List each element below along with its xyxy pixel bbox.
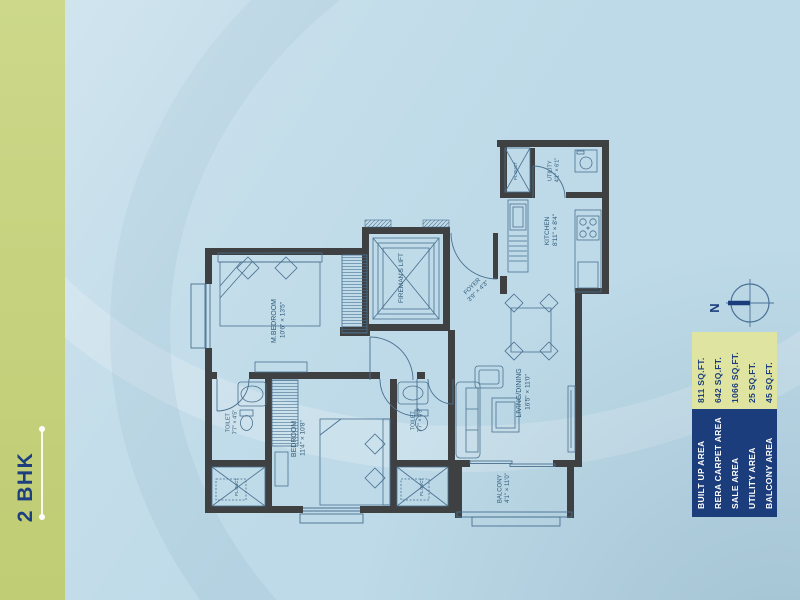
floor-plan-svg: M.BEDROOM 10'6" × 13'5" BEDROOM 11'4" × … (85, 130, 615, 535)
legend-label: RERA CARPET AREA (709, 409, 726, 517)
balcony-label: BALCONY 4'1" × 11'0" (498, 473, 512, 503)
unit-type-label: 2 BHK (14, 452, 38, 523)
lift-shaft (373, 238, 439, 319)
legend-label: BUILT UP AREA (692, 409, 709, 517)
legend-value: 45 SQ.FT. (760, 332, 777, 409)
bedroom-label: BEDROOM 11'4" × 10'8" (291, 419, 307, 457)
divider-dot-top (39, 426, 45, 432)
legend-row: UTILITY AREA 25 SQ.FT. (743, 332, 760, 517)
compass: N (705, 275, 785, 335)
legend-row: RERA CARPET AREA 642 SQ.FT. (709, 332, 726, 517)
legend-row: BALCONY AREA 45 SQ.FT. (760, 332, 777, 517)
foyer-label: FOYER 3'9" × 4'3" (462, 275, 490, 303)
legend-row: BUILT UP AREA 811 SQ.FT. (692, 332, 709, 517)
wall-hatch-strips (365, 220, 449, 227)
walls (205, 140, 609, 518)
duct-top-label: PL.DUCT (513, 162, 518, 180)
kitchen-label: KITCHEN 8'11" × 8'4" (544, 213, 559, 246)
legend-label: UTILITY AREA (743, 409, 760, 517)
legend-label: BALCONY AREA (760, 409, 777, 517)
legend-label: SALE AREA (726, 409, 743, 517)
toilet1-label: TOILET 7'7" × 4'5" (226, 410, 239, 435)
floor-plan: M.BEDROOM 10'6" × 13'5" BEDROOM 11'4" × … (85, 130, 615, 535)
compass-icon: N (705, 275, 785, 335)
legend-value: 811 SQ.FT. (692, 332, 709, 409)
m-bedroom-label: M.BEDROOM 10'6" × 13'5" (271, 297, 287, 343)
lift-label: FIREMAN'S LIFT (398, 253, 405, 303)
duct-left-label: PL.DUCT (234, 478, 239, 496)
page-background: 2 BHK (0, 0, 800, 600)
divider-line (41, 430, 43, 516)
legend-row: SALE AREA 1066 SQ.FT. (726, 332, 743, 517)
legend-value: 25 SQ.FT. (743, 332, 760, 409)
utility-label: UTILITY 4'1" × 6'1" (548, 158, 561, 183)
area-legend: BUILT UP AREA 811 SQ.FT. RERA CARPET ARE… (692, 332, 777, 517)
living-dining-label: LIVING/DINING 16'5" × 11'0" (516, 366, 532, 417)
wardrobes (272, 255, 367, 446)
toilet2-label: TOILET 7'7" × 4'9" (411, 408, 424, 433)
north-label: N (707, 303, 722, 312)
duct-mid-label: PL.DUCT (419, 478, 424, 496)
divider-dot-bottom (39, 514, 45, 520)
legend-value: 642 SQ.FT. (709, 332, 726, 409)
legend-value: 1066 SQ.FT. (726, 332, 743, 409)
